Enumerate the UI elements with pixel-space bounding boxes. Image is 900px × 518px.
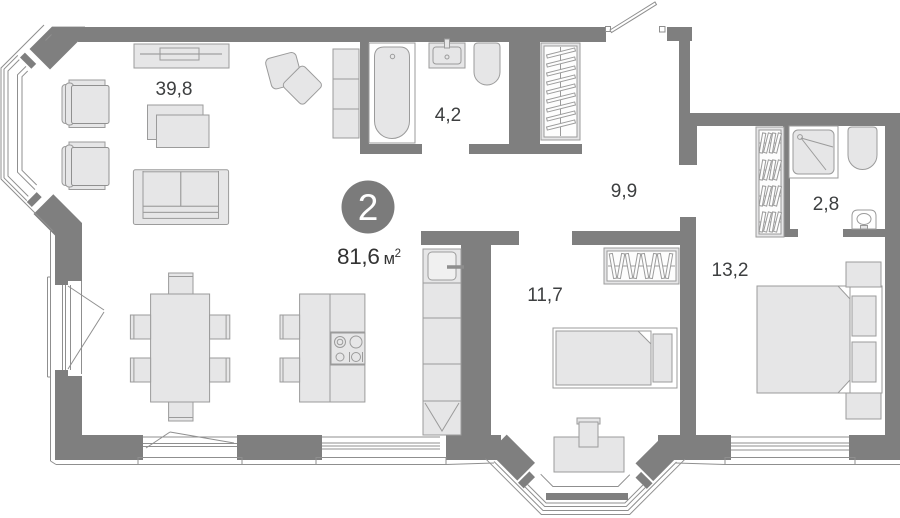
svg-text:2: 2: [358, 187, 379, 228]
svg-text:2,8: 2,8: [813, 194, 839, 215]
svg-text:39,8: 39,8: [156, 79, 193, 100]
svg-text:81,6м2: 81,6м2: [337, 244, 401, 269]
svg-text:9,9: 9,9: [611, 181, 637, 202]
svg-text:4,2: 4,2: [435, 105, 461, 126]
svg-text:11,7: 11,7: [527, 285, 563, 306]
svg-text:13,2: 13,2: [712, 260, 749, 281]
